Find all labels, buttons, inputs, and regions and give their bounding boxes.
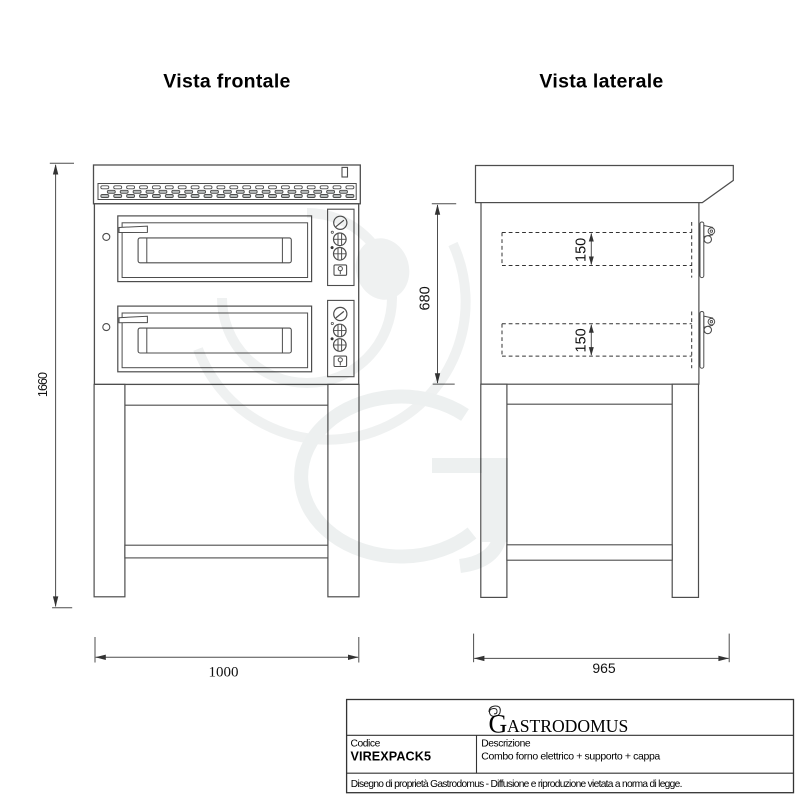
svg-text:Codice: Codice (351, 738, 381, 749)
svg-text:VIREXPACK5: VIREXPACK5 (351, 749, 432, 763)
svg-text:Vista laterale: Vista laterale (539, 71, 663, 93)
svg-text:G: G (489, 710, 508, 739)
svg-text:ASTRODOMUS: ASTRODOMUS (507, 716, 628, 736)
svg-text:150: 150 (574, 328, 590, 352)
svg-text:Vista frontale: Vista frontale (163, 71, 290, 93)
svg-text:680: 680 (418, 286, 434, 310)
svg-text:Descrizione: Descrizione (481, 738, 531, 749)
svg-text:150: 150 (574, 238, 590, 262)
svg-text:Combo forno elettrico + suppor: Combo forno elettrico + supporto + cappa (481, 751, 660, 763)
svg-text:Disegno di proprietà Gastrodom: Disegno di proprietà Gastrodomus - Diffu… (351, 779, 682, 790)
svg-text:965: 965 (592, 660, 616, 676)
svg-text:1000: 1000 (209, 665, 239, 681)
svg-text:1660: 1660 (36, 372, 50, 397)
